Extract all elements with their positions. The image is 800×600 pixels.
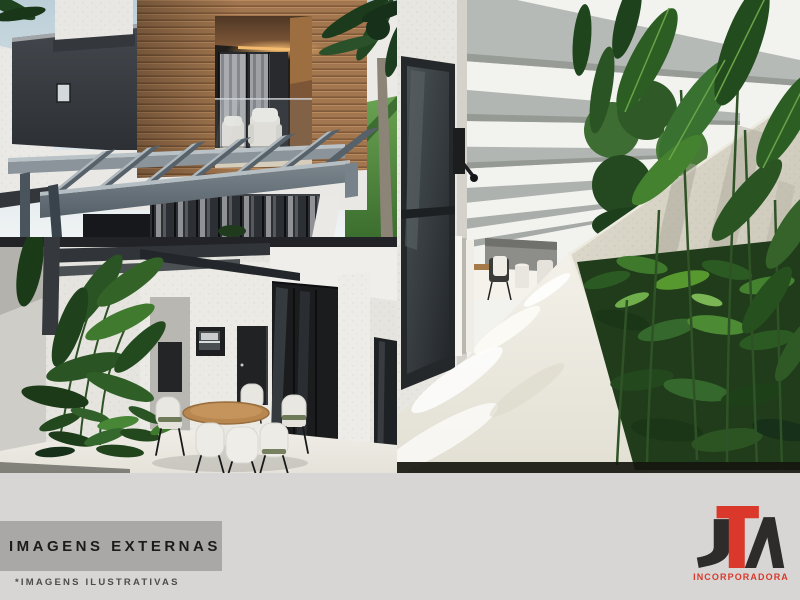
render-patio-dining-art [0, 237, 397, 478]
draped-towel [493, 256, 507, 276]
render-front-facade-art [0, 0, 397, 237]
render-side-corridor-art [397, 0, 800, 473]
logo-mark-jta [694, 504, 788, 570]
corridor-window [401, 56, 455, 390]
section-title: IMAGENS EXTERNAS [9, 538, 221, 555]
footer-band: IMAGENS EXTERNAS *IMAGENS ILUSTRATIVAS I… [0, 473, 800, 600]
slide: IMAGENS EXTERNAS *IMAGENS ILUSTRATIVAS I… [0, 0, 800, 600]
disclaimer-text: *IMAGENS ILUSTRATIVAS [15, 577, 180, 588]
photo-patio-dining [0, 237, 397, 478]
logo-subtitle: INCORPORADORA [686, 572, 796, 582]
photo-front-facade [0, 0, 397, 237]
planter-cylinder [515, 266, 529, 288]
small-window [57, 84, 70, 102]
shrub [218, 225, 246, 237]
logo-letter-a [745, 517, 784, 568]
photo-side-corridor [397, 0, 800, 473]
planter-shadow-strip [397, 462, 800, 473]
patio-window [196, 327, 225, 356]
door-handle [241, 364, 244, 367]
company-logo: INCORPORADORA [686, 504, 796, 582]
section-title-box: IMAGENS EXTERNAS [0, 521, 222, 571]
logo-letter-j [697, 519, 730, 568]
